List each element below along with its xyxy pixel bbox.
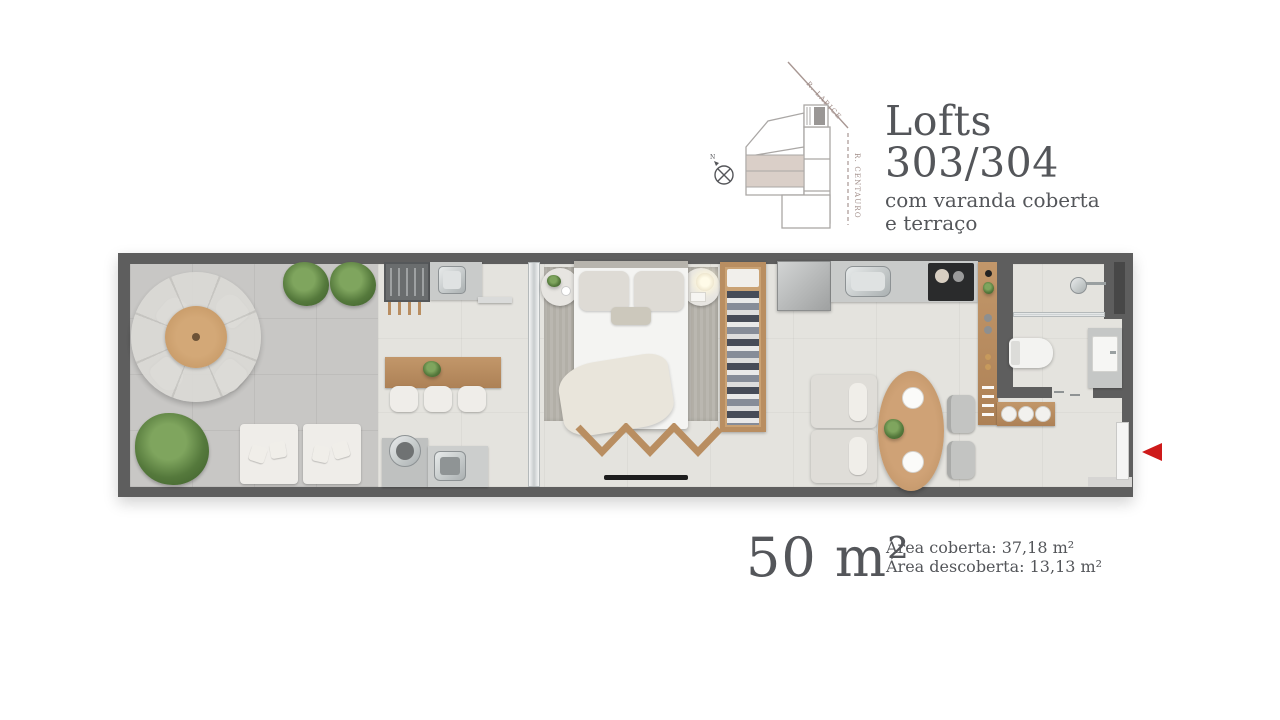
veranda-counter-top [430,262,482,300]
dining-chair-1 [947,395,975,433]
refrigerator [777,261,831,311]
pillow-left [579,271,629,311]
bar-table-plant [423,361,441,377]
page-title-line2: 303/304 [885,142,1100,184]
area-details: Área coberta: 37,18 m² Área descoberta: … [886,538,1102,576]
building-core [807,107,825,125]
bed [574,261,688,429]
dining-table [878,371,944,491]
basin-counter [1088,328,1122,388]
grill-tool-4 [418,302,421,315]
toilet [1009,338,1053,368]
bathroom-wall-bottom-left [997,387,1052,398]
grill-tool-2 [398,302,401,315]
kitchen-counter [831,261,978,302]
uncovered-area: Área descoberta: 13,13 m² [886,557,1102,576]
grill-tool-1 [388,302,391,315]
entrance-door [1116,422,1129,480]
dining-chair-2 [947,441,975,479]
lounger-2 [303,424,361,484]
tv [604,475,688,480]
veranda-shelf [478,297,512,303]
shower-glass-partition [1013,312,1105,317]
wardrobe [720,262,766,432]
shower-head [1070,277,1087,294]
floor-plan [118,253,1133,497]
highlighted-unit-floors [746,155,804,187]
washbasin [1092,336,1118,372]
accent-pillow [611,307,651,325]
table-plant [884,419,904,439]
page-subtitle-line1: com varanda coberta [885,190,1100,211]
covered-area: Área coberta: 37,18 m² [886,538,1102,557]
lounger-1 [240,424,298,484]
bar-stool-3 [458,386,486,412]
cooktop [928,263,974,301]
bar-stool-1 [390,386,418,412]
grill-tool-3 [408,302,411,315]
wardrobe-shelf-items [727,269,759,287]
kitchen-shelf-horizontal [997,402,1055,426]
headboard [574,261,688,268]
sliding-glass-door [528,262,540,487]
bathroom-wall-left [997,253,1013,398]
page-subtitle-line2: e terraço [885,213,1100,234]
terrace-plant-1 [283,262,329,306]
veranda-bar-table [385,357,501,388]
street-label-centauro: R. CENTAURO [853,153,861,219]
hanging-clothes [727,291,759,425]
door-mark-1 [1054,391,1064,393]
zigzag-shelf [574,423,724,459]
title-block: Lofts 303/304 com varanda coberta e terr… [885,100,1100,234]
shower-niche [1114,262,1125,314]
grill-rack [384,262,430,302]
terrace-plant-3 [135,413,209,485]
place-setting-2 [902,451,924,473]
kitchen-shelf-vertical [978,262,998,425]
compass-icon [714,161,733,184]
compass-north-label: N [710,154,715,161]
bedside-lamp [696,273,714,291]
door-mark-2 [1070,394,1080,396]
place-setting-1 [902,387,924,409]
umbrella-pole [192,333,200,341]
bathroom-wall-bottom-right [1093,387,1122,398]
site-key-plan: R. LARICE R. CENTAURO N [700,55,885,240]
entrance-arrow-icon [1142,443,1162,461]
pillow-right [634,271,684,311]
veranda-counter-bottom [428,446,488,487]
terrace-plant-2 [330,262,376,306]
bar-stool-2 [424,386,452,412]
round-grill [389,435,421,467]
sofa [811,375,877,483]
page-title-line1: Lofts [885,100,1100,142]
